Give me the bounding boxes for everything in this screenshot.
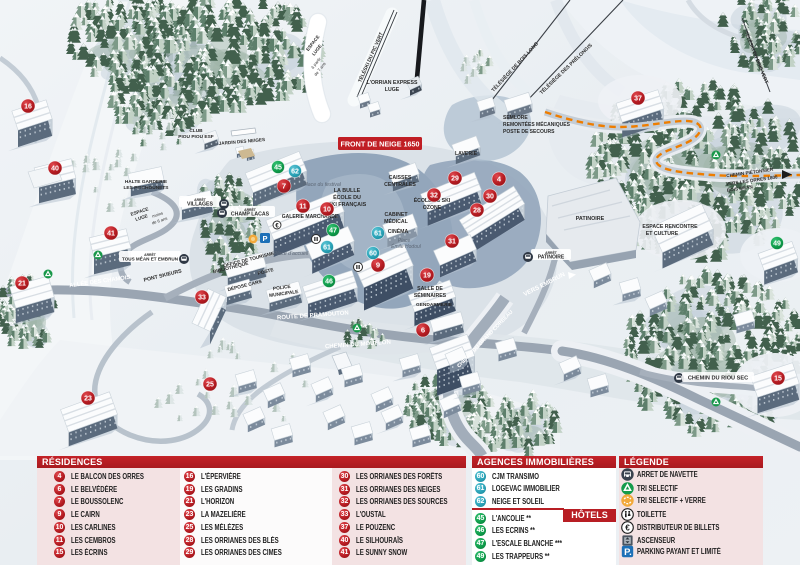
svg-text:21: 21 <box>18 281 26 288</box>
svg-text:REMONTÉES MÉCANIQUES: REMONTÉES MÉCANIQUES <box>503 120 571 128</box>
svg-text:Émile Hodoul: Émile Hodoul <box>391 243 422 250</box>
svg-text:LAVERIE: LAVERIE <box>455 151 478 157</box>
svg-text:L'ORRIAN EXPRESS: L'ORRIAN EXPRESS <box>367 80 418 86</box>
svg-text:CENTRALES: CENTRALES <box>384 182 416 188</box>
svg-text:40: 40 <box>51 166 59 173</box>
svg-text:10: 10 <box>323 207 331 214</box>
svg-text:PIOU PIOU ESF: PIOU PIOU ESF <box>178 134 214 140</box>
svg-text:PATINOIRE: PATINOIRE <box>538 255 565 261</box>
svg-text:9: 9 <box>376 261 380 270</box>
svg-text:CLUB: CLUB <box>189 128 203 134</box>
svg-text:23: 23 <box>84 396 92 403</box>
svg-text:29: 29 <box>451 176 459 183</box>
svg-text:62: 62 <box>291 169 299 176</box>
svg-text:41: 41 <box>107 231 115 238</box>
svg-text:VILLAGES: VILLAGES <box>187 202 213 208</box>
svg-text:PATINOIRE: PATINOIRE <box>576 216 605 222</box>
svg-text:15: 15 <box>774 376 782 383</box>
svg-text:LUGE: LUGE <box>385 87 400 93</box>
svg-text:LA BULLE: LA BULLE <box>334 188 361 194</box>
svg-text:CHAMP LACAS: CHAMP LACAS <box>231 212 270 218</box>
svg-text:TOUS MÉAN ET EMBRUN: TOUS MÉAN ET EMBRUN <box>122 255 179 262</box>
svg-text:25: 25 <box>206 382 214 389</box>
svg-text:19: 19 <box>423 273 431 280</box>
svg-text:Place du festival: Place du festival <box>303 182 342 188</box>
svg-text:45: 45 <box>274 165 282 172</box>
svg-text:ET CULTURE: ET CULTURE <box>646 231 679 237</box>
svg-text:ÉCOLE DU: ÉCOLE DU <box>333 193 361 201</box>
svg-text:37: 37 <box>634 96 642 103</box>
svg-text:30: 30 <box>486 194 494 201</box>
svg-text:CHEMIN DU RIOU SEC: CHEMIN DU RIOU SEC <box>688 376 748 382</box>
svg-text:61: 61 <box>323 245 331 252</box>
svg-text:SEMLORE: SEMLORE <box>503 115 528 121</box>
svg-text:MÉDICAL: MÉDICAL <box>384 217 408 225</box>
svg-text:P: P <box>262 234 267 243</box>
svg-text:HALTE GARDERIE: HALTE GARDERIE <box>125 179 168 185</box>
svg-text:16: 16 <box>24 104 32 111</box>
svg-text:POSTE DE SECOURS: POSTE DE SECOURS <box>503 129 555 135</box>
svg-text:28: 28 <box>473 208 481 215</box>
svg-text:€: € <box>625 523 630 532</box>
svg-text:47: 47 <box>329 228 337 235</box>
svg-text:ESPACE RENCONTRE: ESPACE RENCONTRE <box>642 224 698 230</box>
svg-text:OZONE: OZONE <box>423 205 442 211</box>
svg-text:33: 33 <box>198 295 206 302</box>
svg-text:P.: P. <box>624 546 632 557</box>
svg-text:GENDARMERIE: GENDARMERIE <box>416 302 453 308</box>
svg-text:6: 6 <box>421 326 425 335</box>
svg-text:49: 49 <box>773 241 781 248</box>
svg-text:SALLE DE: SALLE DE <box>417 286 443 292</box>
svg-text:FRONT DE NEIGE 1650: FRONT DE NEIGE 1650 <box>340 140 419 149</box>
svg-text:46: 46 <box>325 279 333 286</box>
svg-text:CAISSES: CAISSES <box>389 175 412 181</box>
svg-text:61: 61 <box>374 231 382 238</box>
svg-text:31: 31 <box>448 239 456 246</box>
svg-text:Place d'accueil: Place d'accueil <box>274 251 309 257</box>
svg-text:CABINET: CABINET <box>384 212 408 218</box>
svg-text:11: 11 <box>299 204 307 211</box>
svg-text:SÉMINAIRES: SÉMINAIRES <box>414 291 447 299</box>
svg-text:CINÉMA: CINÉMA <box>388 227 409 235</box>
svg-text:60: 60 <box>369 251 377 258</box>
svg-text:32: 32 <box>430 193 438 200</box>
svg-text:7: 7 <box>282 182 286 191</box>
svg-text:LES PITCHOUNETS: LES PITCHOUNETS <box>123 185 169 191</box>
